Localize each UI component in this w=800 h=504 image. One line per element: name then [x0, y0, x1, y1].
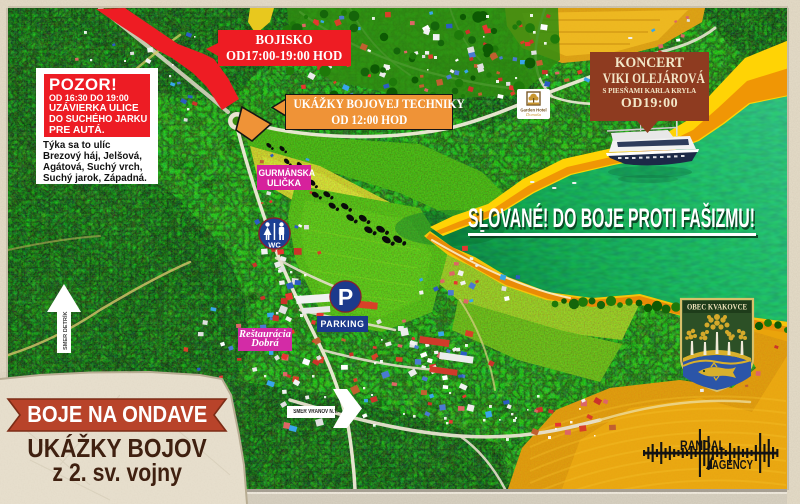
svg-text:RANDAL: RANDAL [680, 438, 725, 453]
svg-text:AGENCY: AGENCY [712, 458, 754, 472]
